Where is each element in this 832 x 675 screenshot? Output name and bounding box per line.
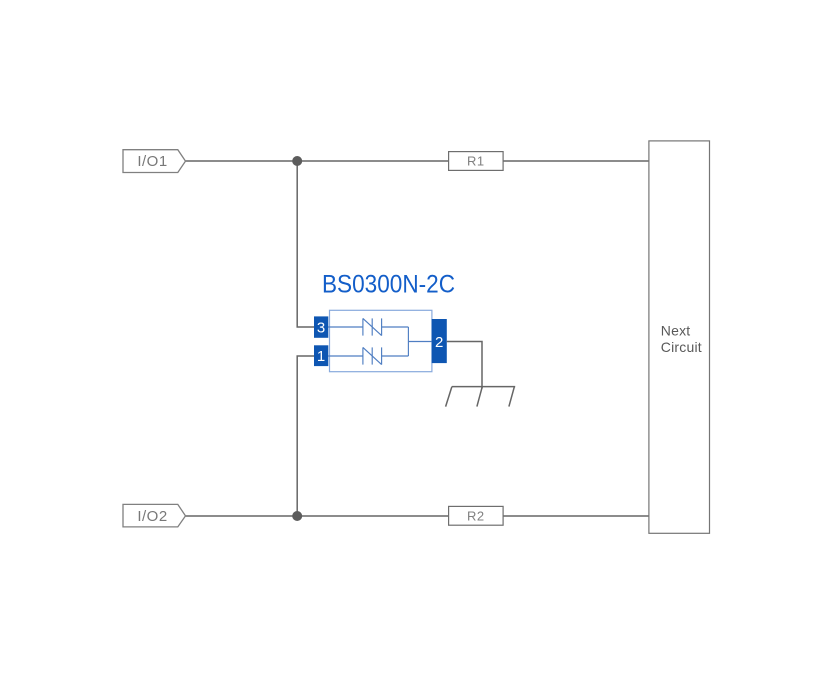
svg-text:Circuit: Circuit <box>661 339 702 355</box>
svg-text:I/O2: I/O2 <box>137 508 167 525</box>
svg-text:Next: Next <box>661 322 691 338</box>
svg-text:BS0300N-2C: BS0300N-2C <box>322 271 455 299</box>
svg-text:R1: R1 <box>467 154 485 169</box>
svg-text:2: 2 <box>435 334 443 351</box>
svg-text:I/O1: I/O1 <box>137 153 167 170</box>
svg-text:3: 3 <box>317 319 325 336</box>
svg-text:1: 1 <box>317 348 325 365</box>
svg-text:R2: R2 <box>467 508 485 523</box>
